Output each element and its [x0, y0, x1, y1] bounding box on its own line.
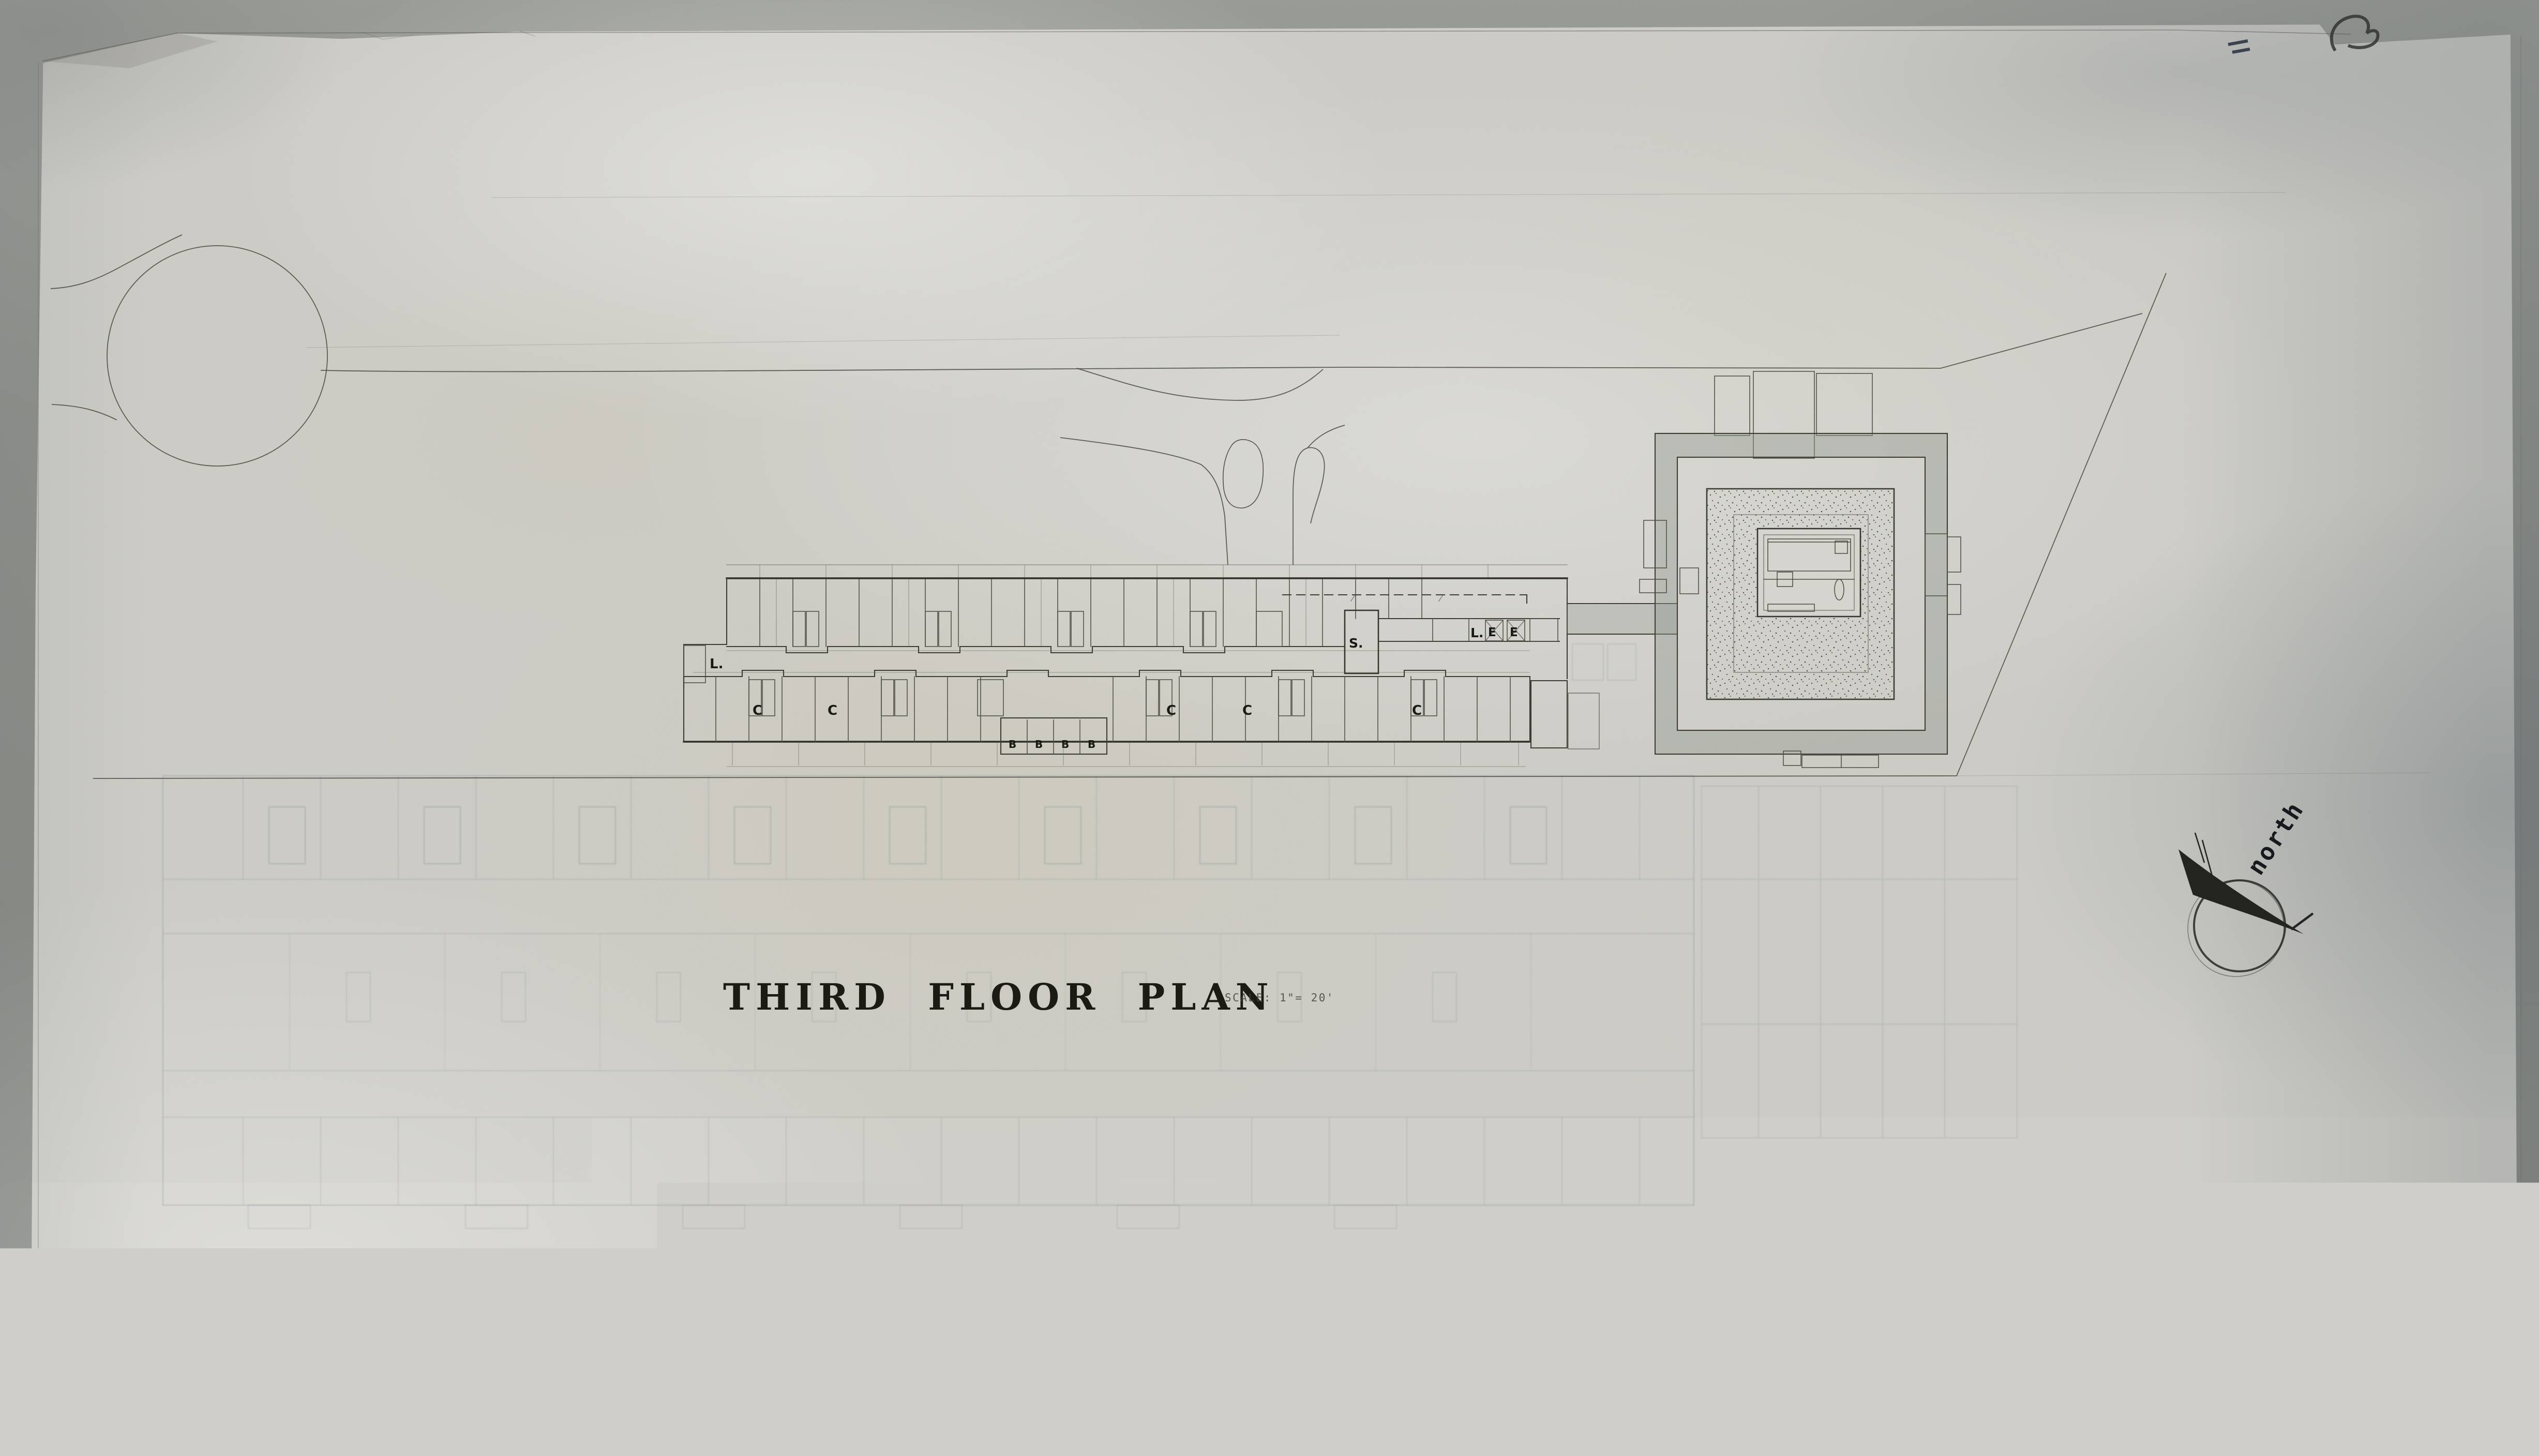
photo-background: SECOND FLOOR PLAN [0, 0, 2539, 1456]
paper-grain [0, 0, 2539, 1456]
drawing-linework: SECOND FLOOR PLAN [0, 0, 2539, 1456]
